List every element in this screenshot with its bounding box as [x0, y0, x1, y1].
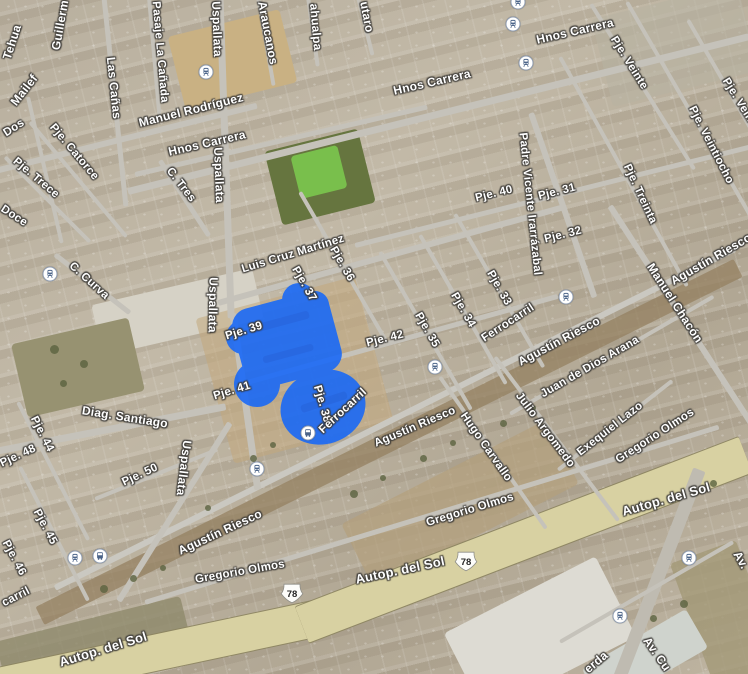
- map-canvas[interactable]: TehuaGuillermMailefPasaje La CañadaLas C…: [0, 0, 748, 674]
- svg-text:78: 78: [461, 557, 472, 568]
- train-station-icon[interactable]: [559, 290, 574, 305]
- svg-text:78: 78: [287, 589, 298, 600]
- route-shield: 78: [280, 583, 304, 609]
- train-station-icon[interactable]: [250, 462, 265, 477]
- train-station-icon[interactable]: [428, 360, 443, 375]
- train-station-icon[interactable]: [519, 56, 534, 71]
- train-station-icon[interactable]: [68, 551, 83, 566]
- bus-stop-icon[interactable]: [93, 549, 108, 564]
- route-shield: 78: [454, 551, 478, 577]
- train-station-icon[interactable]: [43, 267, 58, 282]
- bus-stop-icon[interactable]: [301, 426, 316, 441]
- train-station-icon[interactable]: [511, 0, 526, 10]
- train-station-icon[interactable]: [682, 551, 697, 566]
- train-station-icon[interactable]: [613, 609, 628, 624]
- map-icons-layer: 7878: [0, 0, 748, 674]
- train-station-icon[interactable]: [199, 65, 214, 80]
- train-station-icon[interactable]: [506, 17, 521, 32]
